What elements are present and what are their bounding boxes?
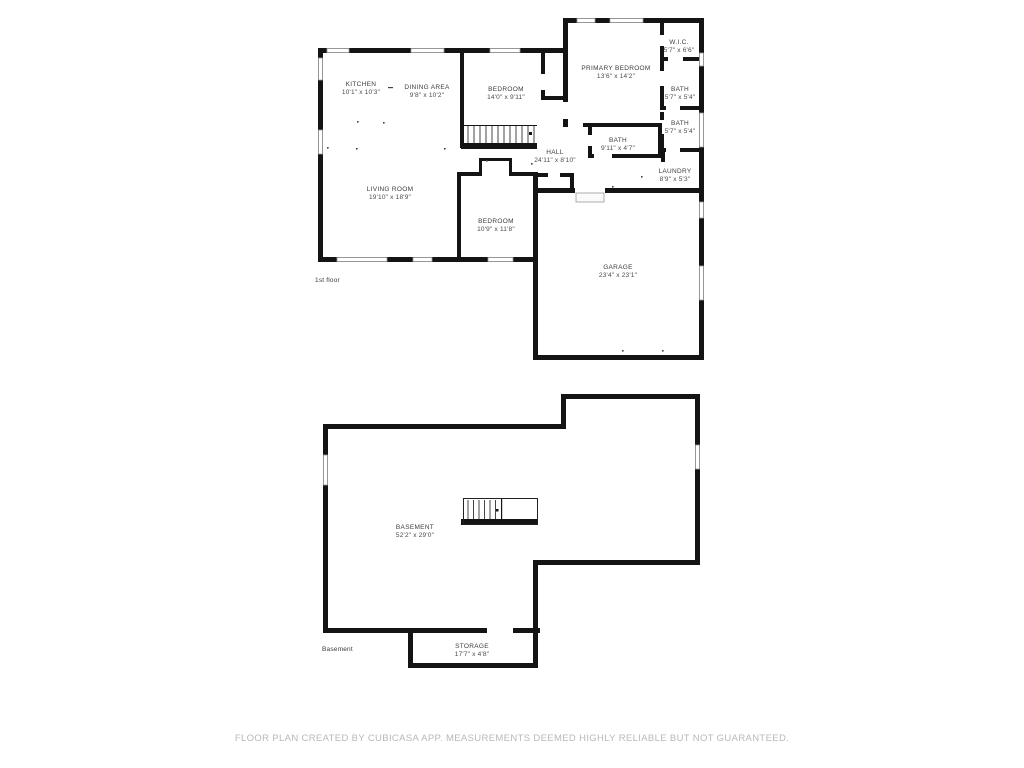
- basement-walls: [323, 394, 700, 668]
- garage-door-threshold: [576, 193, 604, 202]
- floorplan-drawing: [0, 0, 1024, 768]
- first-floor-walls: [318, 18, 704, 360]
- basement-stair-treads: [468, 500, 496, 519]
- floorplan-canvas: KITCHEN 10'1" x 10'3" DINING AREA 9'8" x…: [0, 0, 1024, 768]
- basement-caption: Basement: [322, 646, 353, 653]
- footer-disclaimer: FLOOR PLAN CREATED BY CUBICASA APP. MEAS…: [0, 733, 1024, 744]
- basement-windows: [324, 445, 700, 485]
- first-floor-caption: 1st floor: [315, 277, 340, 284]
- first-floor-stair-treads: [468, 126, 534, 143]
